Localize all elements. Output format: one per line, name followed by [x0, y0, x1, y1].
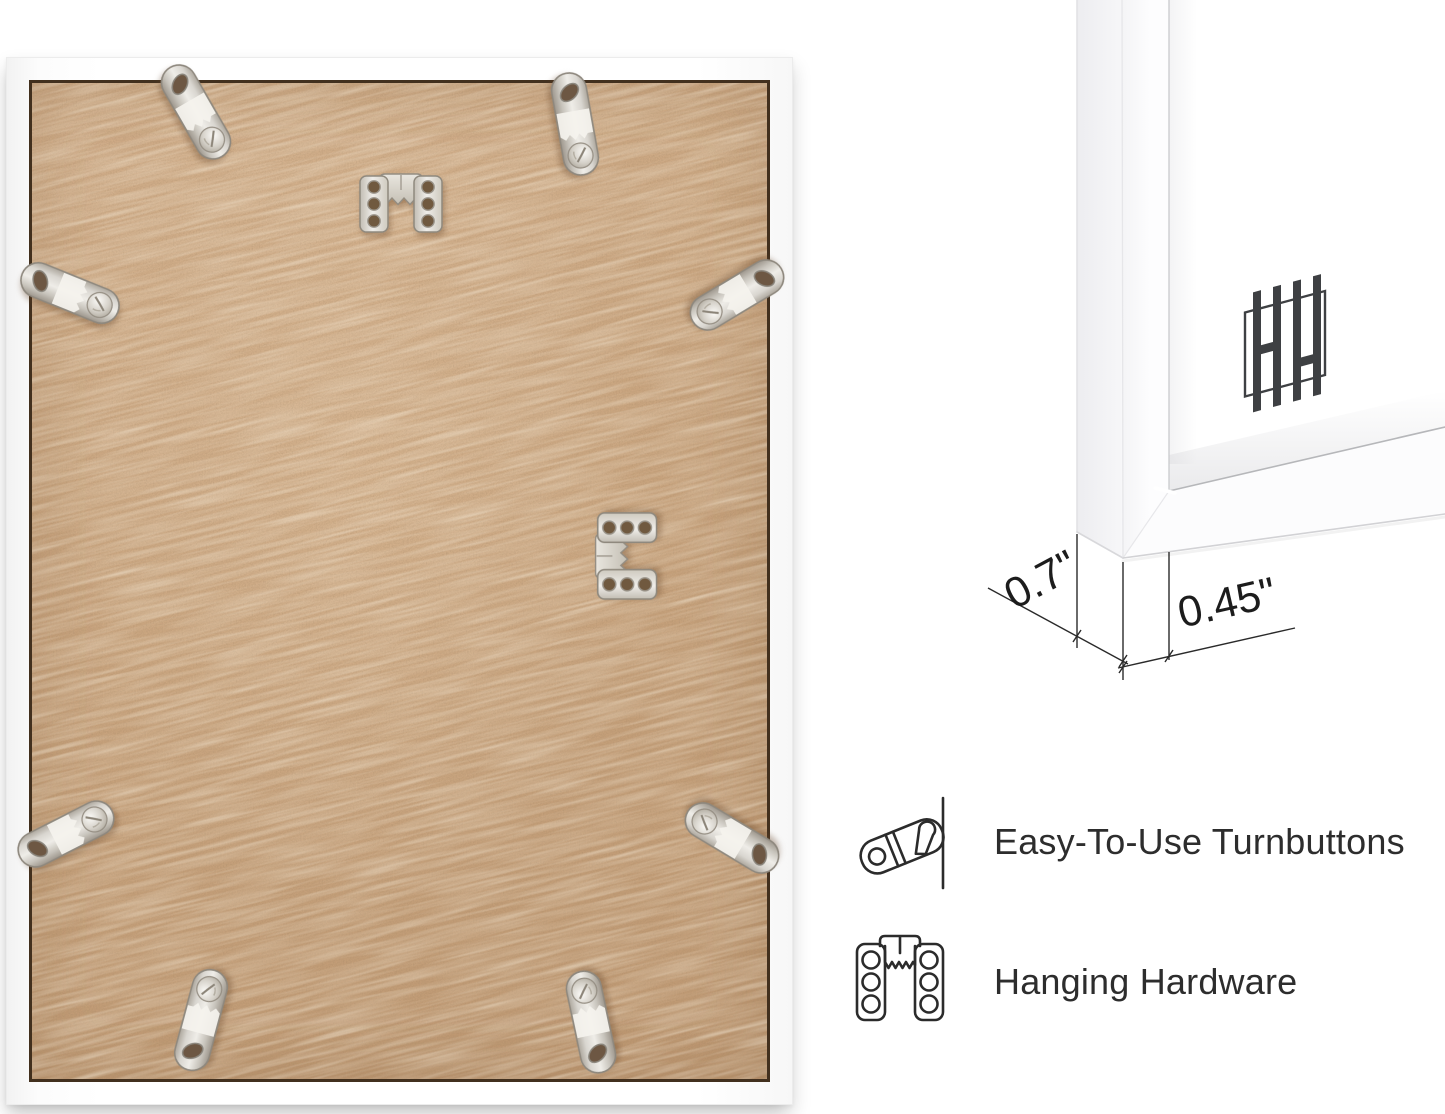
- frame-side-face: [1077, 0, 1123, 558]
- sawtooth-hanger: [591, 511, 658, 601]
- feature-label-hanging-hardware: Hanging Hardware: [994, 960, 1297, 1004]
- product-infographic: 0.7" 0.45" Easy-To-Use Turnbuttons: [0, 0, 1445, 1114]
- sawtooth-hanger-icon: [854, 932, 946, 1029]
- face-width-dimension-label: 0.45": [1173, 568, 1280, 637]
- mat-shadow-left: [1169, 0, 1197, 464]
- turnbutton-icon: [855, 796, 951, 895]
- sawtooth-hanger: [358, 170, 444, 234]
- frame-corner-detail: 0.7" 0.45": [960, 0, 1445, 700]
- feature-label-turnbuttons: Easy-To-Use Turnbuttons: [994, 820, 1405, 864]
- depth-dimension-label: 0.7": [997, 541, 1086, 619]
- frame-front-stile-face: [1122, 0, 1169, 558]
